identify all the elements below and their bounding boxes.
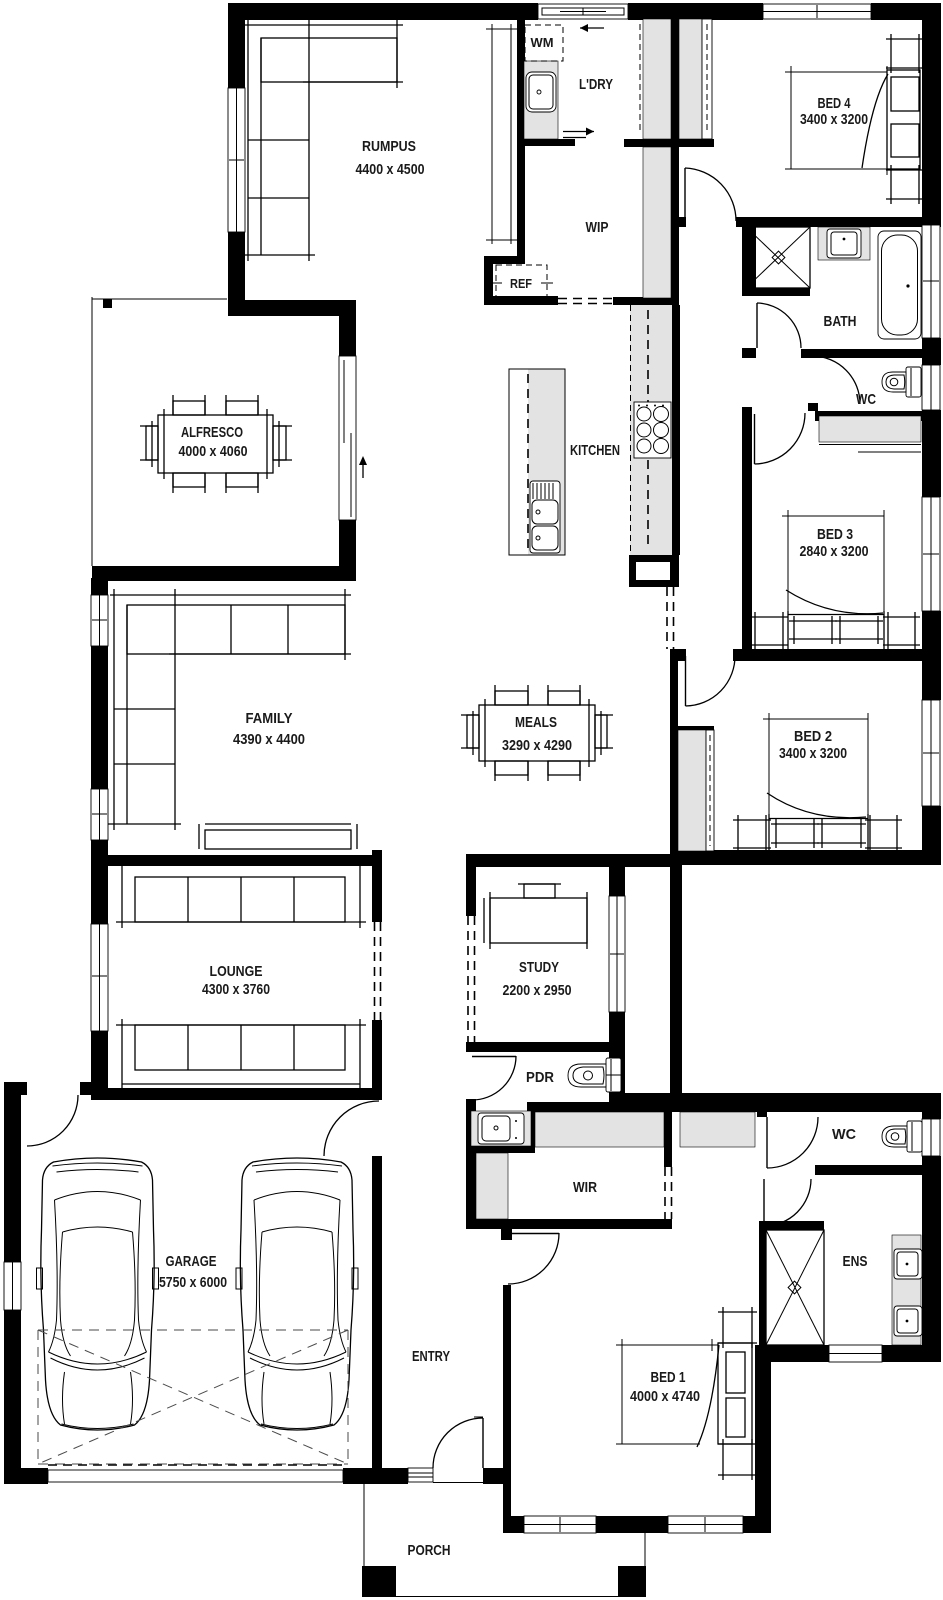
svg-text:L'DRY: L'DRY [579,76,613,93]
svg-text:LOUNGE: LOUNGE [210,963,263,980]
svg-text:4000 x 4060: 4000 x 4060 [179,443,248,460]
svg-text:4390 x 4400: 4390 x 4400 [233,731,305,748]
svg-text:BED 4: BED 4 [818,95,851,112]
svg-text:WM: WM [531,35,554,50]
svg-text:4400 x 4500: 4400 x 4500 [356,161,425,178]
svg-text:STUDY: STUDY [519,959,559,976]
svg-text:PDR: PDR [526,1069,554,1086]
svg-text:BED 2: BED 2 [794,728,832,745]
svg-text:REF: REF [510,276,532,291]
svg-text:GARAGE: GARAGE [166,1253,217,1270]
svg-text:3400 x 3200: 3400 x 3200 [800,111,868,128]
svg-text:4300 x 3760: 4300 x 3760 [202,981,270,998]
svg-text:PORCH: PORCH [408,1542,451,1559]
svg-text:WIR: WIR [573,1179,597,1196]
svg-text:RUMPUS: RUMPUS [362,138,416,155]
svg-text:FAMILY: FAMILY [246,710,293,727]
svg-text:5750 x 6000: 5750 x 6000 [159,1274,227,1291]
svg-text:WC: WC [856,391,876,408]
svg-text:ENTRY: ENTRY [412,1348,450,1365]
svg-text:KITCHEN: KITCHEN [570,442,620,459]
svg-text:4000 x 4740: 4000 x 4740 [630,1388,700,1405]
svg-text:BED 1: BED 1 [651,1369,686,1386]
svg-text:3400 x 3200: 3400 x 3200 [779,745,847,762]
svg-text:2200 x 2950: 2200 x 2950 [503,982,572,999]
svg-text:ALFRESCO: ALFRESCO [181,424,243,441]
svg-text:MEALS: MEALS [515,714,557,731]
svg-text:3290 x 4290: 3290 x 4290 [502,737,572,754]
svg-text:BATH: BATH [824,313,857,330]
svg-text:BED 3: BED 3 [817,526,853,543]
svg-text:ENS: ENS [843,1253,868,1270]
svg-text:2840 x 3200: 2840 x 3200 [800,543,869,560]
svg-text:WIP: WIP [586,219,609,236]
svg-text:WC: WC [832,1126,856,1143]
